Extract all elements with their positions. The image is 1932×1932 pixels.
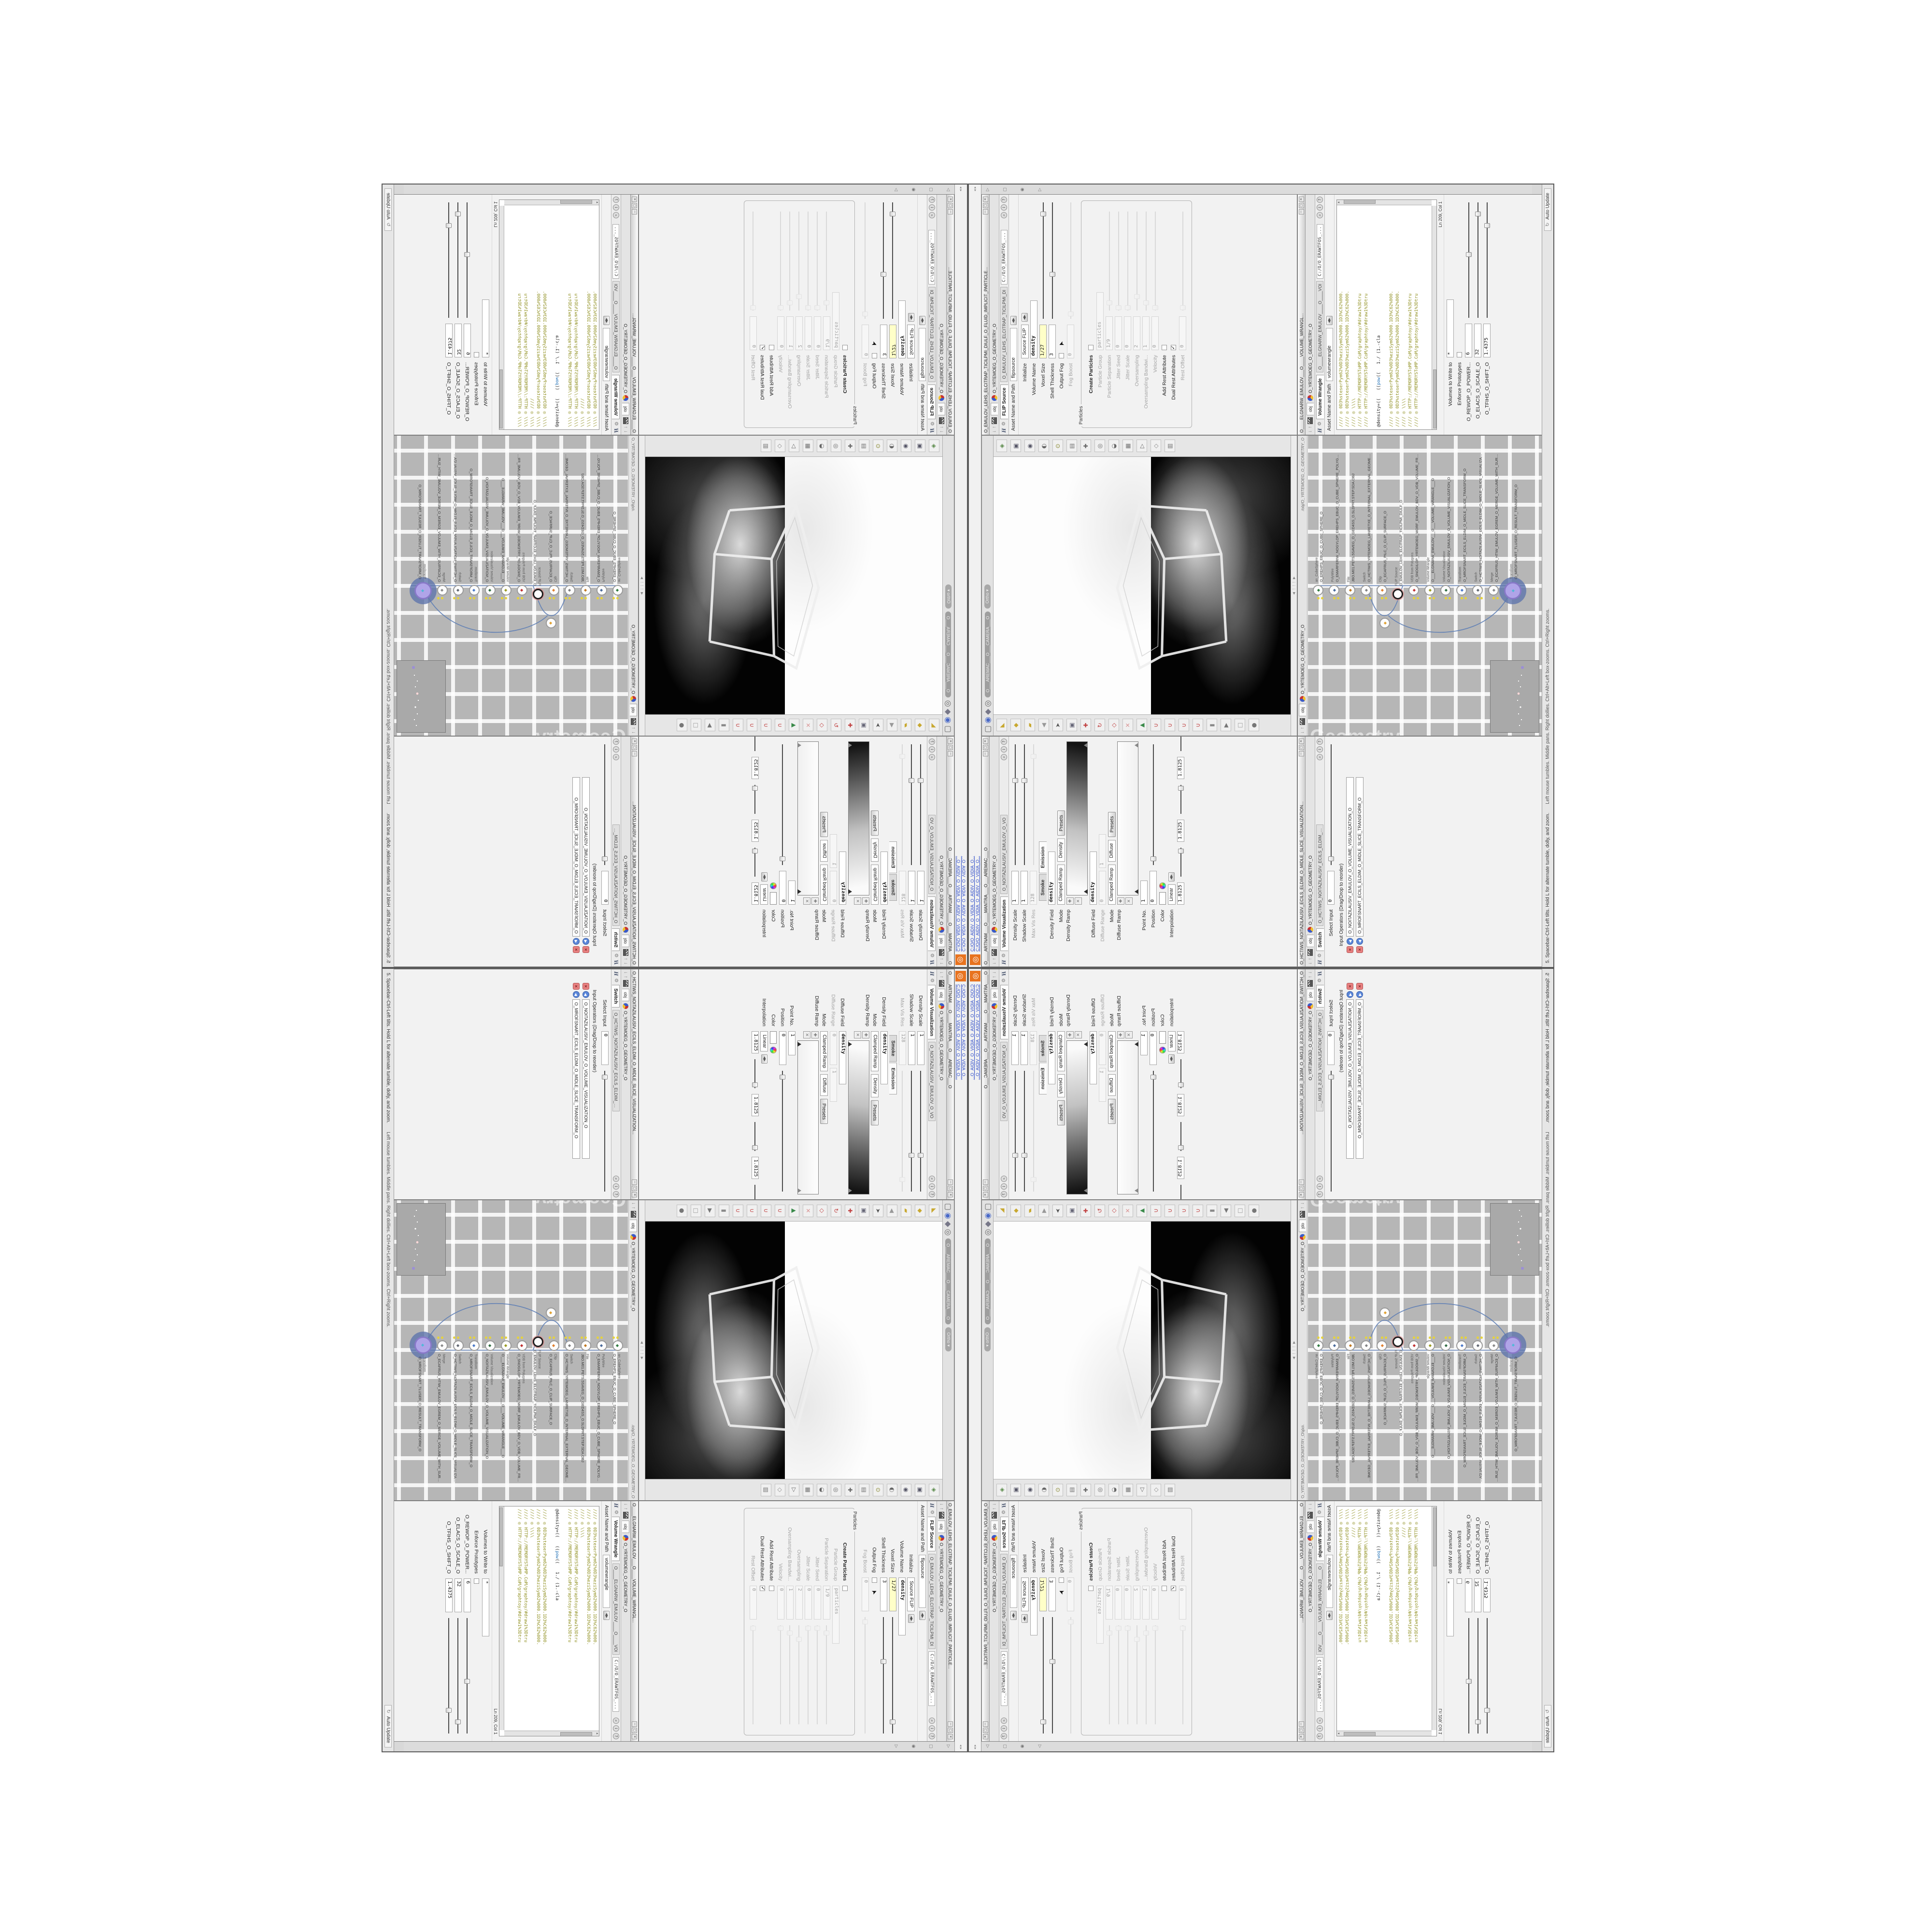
help-icon[interactable]: ?: [1001, 1191, 1007, 1197]
param-field[interactable]: 0: [1151, 316, 1159, 350]
info-icon[interactable]: i: [613, 1183, 619, 1190]
param-field[interactable]: density: [1048, 852, 1055, 905]
maximize-icon[interactable]: ▢: [632, 1186, 637, 1191]
divider-icon[interactable]: ▮: [719, 1205, 729, 1217]
param-field[interactable]: 1: [917, 1031, 924, 1065]
param-slider[interactable]: [862, 202, 869, 319]
gear-icon[interactable]: ⚙: [929, 978, 935, 982]
panel-icon[interactable]: ▢: [1003, 187, 1008, 192]
node-flag-icon[interactable]: [1445, 597, 1447, 599]
network-node[interactable]: ◆ClipO_ECAFRUS_PILC_O_CLIP_SURFACE_O: [1377, 511, 1387, 599]
help-icon[interactable]: ?: [929, 197, 935, 203]
param-field[interactable]: 3: [1049, 1577, 1056, 1611]
network-node[interactable]: ◆PolyWireO_EMARFERIW_NOGYLOP_EREHPS_EBUC…: [1329, 1336, 1339, 1483]
ramp-add-point-button[interactable]: ✚: [1066, 1031, 1074, 1038]
param-field[interactable]: 0: [1327, 1031, 1335, 1065]
help-icon[interactable]: ?: [929, 1733, 935, 1739]
spinner-chip-icon[interactable]: ◀▶: [1010, 1611, 1017, 1620]
dropdown-menu[interactable]: Density: [871, 838, 879, 861]
param-field[interactable]: 1: [1099, 1068, 1106, 1102]
node-flag-icon[interactable]: [1413, 1336, 1415, 1339]
param-slider[interactable]: [899, 1071, 906, 1192]
node-flag-icon[interactable]: [505, 1336, 508, 1339]
divider-icon[interactable]: ▮: [1207, 1205, 1217, 1217]
camera-box-icon[interactable]: ▣: [859, 1205, 869, 1217]
viewport-scene[interactable]: [645, 457, 942, 714]
ramp-delete-point-button[interactable]: ✕: [803, 1031, 810, 1038]
node-flag-icon[interactable]: [1429, 597, 1431, 599]
param-slider[interactable]: [1465, 1618, 1472, 1733]
node-body-icon[interactable]: ◆: [565, 585, 575, 596]
minimize-icon[interactable]: ─: [1299, 1179, 1304, 1185]
network-node[interactable]: ◆FileJBO.M01.PETS.5SAVEG_O_GED4SS_O.SLDP…: [1345, 473, 1355, 599]
param-field[interactable]: 6: [464, 1578, 471, 1612]
lock-view-icon[interactable]: ◉: [1024, 440, 1035, 453]
active-node-tab[interactable]: Switch: [1316, 985, 1324, 1007]
reorder-operator-icon[interactable]: ◀: [1356, 938, 1363, 945]
node-flag-icon[interactable]: [617, 1336, 619, 1339]
close-icon[interactable]: ✕: [1299, 1734, 1304, 1739]
param-field[interactable]: 32: [455, 324, 462, 357]
sphere-small-icon[interactable]: ●: [1249, 719, 1259, 732]
nav-back-icon[interactable]: ↓: [992, 1503, 997, 1506]
node-flag-icon[interactable]: [1349, 597, 1351, 599]
node-flag-icon[interactable]: [1477, 1336, 1479, 1339]
tray-arrow-icon[interactable]: ▷: [1037, 188, 1042, 191]
node-path-tab[interactable]: O_HCTIWS_NOITAZILAUSIV_ECILS_ELDIM_O_: [612, 824, 620, 926]
network-node[interactable]: ◆SwitchO_HCTIWS_NOITAZILAUSIV_ECILS_ELDI…: [1472, 453, 1483, 599]
half-shade-icon[interactable]: ◐: [1038, 1484, 1049, 1496]
param-field[interactable]: 128: [899, 871, 906, 905]
mesh-icon[interactable]: ▦: [803, 440, 813, 453]
param-field[interactable]: 0: [777, 316, 784, 350]
network-overview-minimap[interactable]: [397, 1203, 446, 1276]
close-icon[interactable]: ✕: [983, 197, 988, 202]
viewport-scene[interactable]: [994, 1222, 1291, 1479]
ramp-add-point-button[interactable]: ✚: [811, 897, 819, 905]
asset-name-field[interactable]: flipsource: [919, 328, 926, 381]
info-icon[interactable]: i: [929, 1725, 935, 1732]
node-body-icon[interactable]: ◆: [1313, 585, 1323, 596]
obj-tab[interactable]: obj: [1307, 989, 1314, 1001]
checkbox[interactable]: [474, 1578, 479, 1584]
gear-icon[interactable]: ⚙: [1001, 978, 1007, 982]
ramp-gradient-editor[interactable]: [797, 1040, 819, 1194]
nav-fwd-icon[interactable]: ↑: [992, 1507, 997, 1510]
paint-tool-icon[interactable]: ▰: [1024, 1205, 1035, 1217]
network-node[interactable]: ◆TransformO_MROFSNART_ECILS_ELDIM_O_MIDL…: [469, 469, 480, 599]
box-view-icon[interactable]: ◆: [983, 709, 992, 715]
window-titlebar[interactable]: O_HCTIWS_NOITAZILAUSIV_ECILS_ELDIM_O_MID…: [630, 969, 638, 1199]
search-icon[interactable]: ⌕: [613, 1718, 619, 1724]
help-icon[interactable]: ?: [613, 739, 619, 745]
node-body-icon[interactable]: ◆: [437, 585, 448, 596]
operator-name-field[interactable]: O_MROFSNART_ECILS_ELDIM_O_MIDLE_SLICE_TR…: [572, 777, 580, 937]
select-mode-icon[interactable]: ◈: [929, 1484, 939, 1496]
remove-operator-icon[interactable]: ✕: [573, 983, 580, 990]
select-diamond-icon[interactable]: ◆: [1010, 1205, 1021, 1217]
obj-tab[interactable]: obj: [991, 935, 998, 947]
node-body-icon[interactable]: ◆: [1345, 585, 1355, 596]
minimize-icon[interactable]: ─: [983, 209, 988, 214]
node-path-tab[interactable]: O_NOITAZILAUSIV_EMULOV_O_VO: [928, 1042, 936, 1121]
node-flag-icon[interactable]: [473, 1336, 476, 1339]
param-slider[interactable]: [787, 1625, 794, 1724]
close-icon[interactable]: ✕: [1299, 739, 1304, 744]
param-field[interactable]: 1: [917, 871, 924, 905]
network-node[interactable]: ◆SwitchO_HCTIWS_YRTEMOEG_LANRETXE_O_INTE…: [1361, 1336, 1371, 1483]
minimize-icon[interactable]: ─: [983, 1721, 988, 1727]
window-titlebar[interactable]: O____ELGNARW_EMULOV___O____VOLUME_WRANGL…: [630, 1501, 638, 1741]
node-body-icon[interactable]: ◆: [546, 618, 556, 628]
ramp-delete-point-button[interactable]: ✕: [854, 897, 861, 905]
param-field[interactable]: 1.4375: [445, 324, 453, 357]
search-icon[interactable]: ⌕: [1001, 1718, 1007, 1724]
network-node[interactable]: ◆TransformO_MROFSNART_ECILS_ELDIM_O_MIDL…: [1456, 1336, 1467, 1467]
checkbox[interactable]: [1162, 1586, 1167, 1591]
help-icon[interactable]: ?: [1317, 197, 1323, 203]
spinner-chip-icon[interactable]: ◀▶: [1326, 1611, 1333, 1620]
param-field[interactable]: 0: [805, 316, 812, 350]
ramp-delete-point-button[interactable]: ✕: [1075, 1031, 1082, 1038]
node-flag-icon[interactable]: [1461, 597, 1463, 599]
nav-back-icon[interactable]: ↓: [939, 971, 944, 974]
param-slider[interactable]: [1040, 202, 1047, 319]
ramp-gradient-editor[interactable]: [848, 1040, 869, 1194]
minimize-icon[interactable]: ─: [948, 1179, 953, 1185]
collapse-arrow-icon[interactable]: ▷: [985, 1745, 990, 1748]
param-field[interactable]: 0: [830, 1031, 837, 1065]
param-field[interactable]: particles: [832, 1586, 839, 1644]
reorder-operator-icon[interactable]: ◀: [573, 938, 580, 945]
operator-name-field[interactable]: O_MROFSNART_ECILS_ELDIM_O_MIDLE_SLICE_TR…: [1356, 999, 1364, 1159]
maximize-icon[interactable]: ▢: [983, 1186, 988, 1191]
param-slider[interactable]: [752, 1059, 759, 1088]
node-flag-icon[interactable]: [505, 597, 508, 599]
node-flag-icon[interactable]: [1445, 1336, 1447, 1339]
obj-tab[interactable]: obj: [1299, 1220, 1306, 1232]
network-node[interactable]: ◆Volume WrangleO___ELGNARW_EMULOV___O___…: [1424, 478, 1435, 599]
obj-tab[interactable]: obj: [1307, 403, 1314, 415]
active-node-tab[interactable]: FLIP Source: [928, 384, 936, 419]
gear-icon[interactable]: ⚙: [1001, 953, 1007, 958]
window-titlebar[interactable]: O____ELGNARW_EMULOV___O____VOLUME_WRANGL…: [1298, 1501, 1306, 1741]
info-icon[interactable]: i: [613, 204, 619, 211]
param-field[interactable]: 1: [1021, 871, 1028, 905]
maximize-icon[interactable]: ▢: [632, 745, 637, 750]
shade-box-icon[interactable]: ▣: [915, 440, 925, 453]
back-arrow-icon[interactable]: ◀: [887, 719, 897, 732]
layout-icon[interactable]: ▢: [944, 725, 953, 733]
node-flag-icon[interactable]: [601, 1336, 603, 1339]
param-slider[interactable]: [1115, 212, 1122, 311]
ortho-selector[interactable]: Ortho ▾: [945, 584, 952, 609]
scale-tool-icon[interactable]: ◇: [817, 719, 827, 732]
maximize-icon[interactable]: ▢: [983, 203, 988, 208]
node-flag-icon[interactable]: [441, 597, 444, 599]
window-titlebar[interactable]: O_EMULOV_LEHS_ELCITRAP_TICILPMI_DIULF_O_…: [946, 1501, 954, 1741]
help-icon[interactable]: ?: [929, 739, 935, 745]
geometry-path[interactable]: O_YRTEMOEG_O_GEOMETRY_O: [939, 324, 944, 393]
lock-view-icon[interactable]: ◉: [901, 1484, 911, 1496]
node-body-icon[interactable]: ◆: [1313, 1340, 1323, 1351]
param-slider[interactable]: [1040, 1617, 1047, 1733]
shade-box-icon[interactable]: ▣: [1010, 440, 1021, 453]
param-field[interactable]: 6: [1465, 1578, 1472, 1612]
param-slider[interactable]: [909, 1071, 915, 1192]
node-body-icon[interactable]: ◆: [1361, 1340, 1371, 1351]
network-canvas[interactable]: Geometry ◆an_CubeSphereO_EREHPS_EBUC_O_C…: [1308, 1200, 1542, 1500]
select-diamond-icon[interactable]: ◆: [915, 719, 925, 732]
maximize-icon[interactable]: ▢: [948, 745, 953, 750]
search-icon[interactable]: ⌕: [613, 1176, 619, 1182]
select-diamond-icon[interactable]: ◆: [915, 1205, 925, 1217]
info-icon[interactable]: i: [1001, 204, 1007, 211]
info-icon[interactable]: i: [1317, 1183, 1323, 1190]
network-node[interactable]: ◆TransformO_MROFSNART_TLUSER_O_RESULT_TR…: [414, 484, 432, 599]
nav-back-icon[interactable]: ↓: [623, 962, 628, 965]
node-body-icon[interactable]: ◆: [1408, 1340, 1419, 1351]
software-path-field[interactable]: C:/O/O_ERAWTFOS_...: [613, 1657, 620, 1712]
network-node[interactable]: ◆PolyWireO_EMARFERIW_NOGYLOP_EREHPS_EBUC…: [1329, 453, 1339, 599]
half-shade-icon[interactable]: ◐: [887, 440, 897, 453]
info-icon[interactable]: i: [1317, 746, 1323, 753]
param-field[interactable]: 1.8125: [1177, 1157, 1184, 1179]
node-flag-icon[interactable]: [521, 1336, 524, 1339]
geometry-path[interactable]: O_YRTEMOEG_O_GEOMETRY_O: [624, 324, 628, 393]
ramp-gradient-editor[interactable]: [1117, 741, 1138, 895]
presets-button[interactable]: Presets: [821, 1099, 828, 1124]
checkbox[interactable]: [769, 345, 774, 350]
divider-icon[interactable]: ▮: [1207, 719, 1217, 732]
presets-button[interactable]: Presets: [1057, 1100, 1065, 1125]
node-body-icon[interactable]: ◆: [485, 585, 496, 596]
param-slider[interactable]: [1134, 212, 1140, 311]
node-flag-icon[interactable]: [1365, 597, 1367, 599]
param-slider[interactable]: [455, 1618, 462, 1733]
param-slider[interactable]: [1143, 212, 1150, 311]
param-field[interactable]: 0: [814, 316, 821, 350]
play-icon[interactable]: ▷: [789, 1484, 799, 1496]
geometry-path[interactable]: O_YRTEMOEG_O_GEOMETRY_O: [631, 1242, 636, 1311]
active-node-tab[interactable]: FLIP Source: [1000, 1517, 1008, 1551]
param-slider[interactable]: [464, 202, 471, 318]
window-titlebar[interactable]: O____ARTNAM___O____MANTRA___O___AREMAC__…: [982, 969, 990, 1199]
maximize-icon[interactable]: ▢: [948, 1728, 953, 1733]
ramp-delete-point-button[interactable]: ✕: [854, 1031, 861, 1038]
network-node[interactable]: ◆MergeO_ECAFRUS_HTIW_EMULOV_EGREM_O_MERG…: [437, 453, 448, 599]
gear-icon[interactable]: ⚙: [1317, 978, 1322, 982]
node-path-tab[interactable]: O_EMULOV_LEHS_ELCITRAP_TICILPMI_DI: [1000, 1554, 1008, 1649]
info-icon[interactable]: i: [929, 1183, 935, 1190]
spinner-chip-icon[interactable]: ◀▶: [603, 316, 610, 325]
network-node[interactable]: ◆SwitchO_HCTIWS_YRTEMOEG_LANRETXE_O_INTE…: [1361, 453, 1371, 599]
gear-icon[interactable]: ⚙: [1317, 953, 1322, 958]
operator-name-field[interactable]: O_NOITAZILAUSIV_EMULOV_O_VOLUME_VISUALIZ…: [1346, 999, 1354, 1159]
select-mode-icon[interactable]: ◈: [996, 440, 1007, 453]
circle-tool-icon[interactable]: ◎: [831, 440, 841, 453]
close-icon[interactable]: ✕: [632, 1192, 637, 1197]
presets-button[interactable]: Presets: [1108, 1099, 1116, 1124]
maximize-icon[interactable]: ▢: [948, 203, 953, 208]
spinner-chip-icon[interactable]: ◀▶: [1326, 316, 1333, 325]
nav-back-icon[interactable]: ↓: [992, 430, 997, 433]
param-field[interactable]: 1/27: [1039, 1577, 1047, 1611]
close-icon[interactable]: ✕: [948, 739, 953, 744]
param-field[interactable]: 32: [1474, 324, 1481, 357]
nav-back-icon[interactable]: ↓: [939, 1503, 944, 1506]
snap-point-magnet-icon[interactable]: ∪: [761, 719, 771, 732]
mesh-icon[interactable]: ▦: [1122, 440, 1133, 453]
param-field[interactable]: 1.8125: [1177, 1094, 1184, 1116]
network-node[interactable]: ◆TransformO_MROFSNART_ECILS_ELDIM_O_MIDL…: [1456, 469, 1467, 599]
snap-grid-magnet-icon[interactable]: ∪: [1151, 719, 1161, 732]
param-slider[interactable]: [1106, 1625, 1113, 1724]
grid-icon[interactable]: ▤: [1066, 440, 1077, 453]
world-icon[interactable]: ◉: [944, 717, 953, 724]
nav-fwd-icon[interactable]: ↑: [939, 426, 944, 428]
paint-tool-icon[interactable]: ▰: [1024, 719, 1035, 732]
param-field[interactable]: density: [1090, 1031, 1097, 1084]
search-icon[interactable]: ⌕: [1001, 1176, 1007, 1182]
network-node[interactable]: ◆an_CubeSphereO_EREHPS_EBUC_O_CUBE_SPHER…: [612, 1336, 623, 1424]
ramp-add-point-button[interactable]: ✚: [862, 1031, 869, 1038]
param-slider[interactable]: [1115, 1625, 1122, 1724]
param-field[interactable]: density: [839, 852, 846, 905]
geometry-path[interactable]: O_YRTEMOEG_O_GEOMETRY_O: [939, 1543, 944, 1612]
play-small-icon[interactable]: ▶: [1221, 1205, 1231, 1217]
auto-update-control[interactable]: ↻Auto Update: [384, 1705, 392, 1747]
param-field[interactable]: particles: [1096, 1586, 1104, 1644]
target-icon[interactable]: ◎: [944, 1229, 953, 1236]
obj-tab[interactable]: obj: [622, 935, 629, 947]
param-slider[interactable]: [824, 212, 830, 311]
info-icon[interactable]: i: [613, 1725, 619, 1732]
param-field[interactable]: 1.8125: [752, 882, 759, 905]
vex-code-editor[interactable]: //// ◎ 0D3%steserPym62%0D3%eziSym62%000.…: [1336, 199, 1437, 430]
active-node-tab[interactable]: Volume Wrangle: [1316, 375, 1324, 419]
param-slider[interactable]: [918, 1071, 924, 1192]
param-field[interactable]: 0: [750, 1586, 757, 1619]
nav-fwd-icon[interactable]: ↑: [623, 958, 628, 960]
nav-fwd-icon[interactable]: ↑: [939, 958, 944, 960]
param-slider[interactable]: [1328, 1071, 1335, 1192]
obj-tab[interactable]: obj: [938, 935, 945, 947]
param-slider[interactable]: [805, 212, 812, 311]
nav-back-icon[interactable]: ↓: [631, 731, 636, 734]
checkbox[interactable]: [842, 1586, 848, 1591]
node-flag-icon[interactable]: [1333, 1336, 1335, 1339]
ramp-add-point-button[interactable]: ✚: [862, 897, 869, 905]
ramp-add-point-button[interactable]: ✚: [1066, 897, 1074, 905]
node-flag-icon[interactable]: [457, 1336, 460, 1339]
window-titlebar[interactable]: O____ARTNAM___O____MANTRA___O___AREMAC__…: [946, 969, 954, 1199]
network-node[interactable]: ◆an_CubeSphereO_EREHPS_EBUC_O_CUBE_SPHER…: [1313, 1336, 1323, 1424]
param-slider[interactable]: [1049, 202, 1056, 319]
node-body-icon[interactable]: ◆: [501, 1340, 511, 1351]
param-slider[interactable]: [1143, 1625, 1150, 1724]
param-field[interactable]: 0: [814, 1586, 821, 1619]
obj-tab[interactable]: obj: [630, 1220, 637, 1232]
snap-point-magnet-icon[interactable]: ∪: [1165, 1205, 1175, 1217]
node-body-icon[interactable]: ◆: [1504, 582, 1521, 599]
layout-icon[interactable]: ▢: [983, 725, 992, 733]
dropdown-menu[interactable]: Diffuse: [1108, 1074, 1116, 1096]
geometry-path[interactable]: O_YRTEMOEG_O_GEOMETRY_O: [939, 1011, 944, 1080]
param-field[interactable]: 1.8125: [1177, 820, 1184, 842]
param-field[interactable]: 0: [779, 871, 786, 905]
param-slider[interactable]: [1150, 1071, 1157, 1192]
play-small-icon[interactable]: ▶: [705, 719, 715, 732]
geometry-path[interactable]: O_YRTEMOEG_O_GEOMETRY_O: [1308, 1011, 1313, 1080]
file-path-link[interactable]: C:/O/O_AIDIV_O_VIDIA_O_AIDIV_O_VIDIA_O..…: [970, 856, 975, 952]
param-slider[interactable]: [780, 1071, 786, 1192]
color-swatch[interactable]: [770, 892, 777, 905]
camera-selector[interactable]: O___AREMAC___O___CAMERA___O: [985, 611, 991, 697]
dropdown-menu[interactable]: Density: [871, 1074, 879, 1097]
network-node[interactable]: ◆TransformO_MROFSNART_TLUSER_O_RESULT_TR…: [1504, 1336, 1521, 1451]
param-field[interactable]: 1: [830, 834, 837, 868]
param-slider[interactable]: [881, 1617, 887, 1733]
node-body-icon[interactable]: ◆: [1488, 585, 1499, 596]
node-body-icon[interactable]: ◆: [1377, 585, 1387, 596]
cursor-tool-icon[interactable]: ➤: [1052, 1205, 1063, 1217]
dropdown-menu[interactable]: Source FLIP: [908, 325, 915, 358]
ramp-add-point-button[interactable]: ✚: [1117, 897, 1124, 905]
minimize-icon[interactable]: ─: [632, 1721, 637, 1727]
node-flag-icon[interactable]: [1317, 597, 1320, 599]
param-slider[interactable]: [1465, 202, 1472, 318]
circle-tool-icon[interactable]: ◎: [1094, 440, 1105, 453]
node-body-icon[interactable]: ◆: [581, 585, 591, 596]
param-slider[interactable]: [1178, 736, 1184, 751]
move-tool-icon[interactable]: ✚: [1080, 719, 1091, 732]
param-field[interactable]: 1/27: [889, 1577, 896, 1611]
info-icon[interactable]: i: [1001, 746, 1007, 753]
minimize-icon[interactable]: ─: [1299, 1721, 1304, 1727]
dropdown-menu[interactable]: Density: [1057, 1074, 1065, 1097]
info-icon[interactable]: i: [1001, 1725, 1007, 1732]
node-body-icon[interactable]: ◆: [1424, 585, 1435, 596]
param-field[interactable]: density: [1048, 1031, 1055, 1084]
param-field[interactable]: 0: [1115, 316, 1122, 350]
node-flag-icon[interactable]: [569, 1336, 571, 1339]
color-picker-icon[interactable]: [770, 1047, 777, 1053]
asset-name-field[interactable]: volumewrangle: [1326, 1555, 1333, 1608]
search-icon[interactable]: ⌕: [1001, 754, 1007, 760]
code-horizontal-scrollbar[interactable]: [1432, 206, 1436, 429]
minimize-icon[interactable]: ─: [632, 751, 637, 756]
grid-icon[interactable]: ▤: [1066, 1484, 1077, 1496]
node-flag-icon[interactable]: [553, 1336, 555, 1339]
param-slider[interactable]: [752, 785, 759, 814]
splitter-arrows-icon[interactable]: ◂ ▸: [959, 186, 963, 191]
dropdown-menu[interactable]: Clamped Ramp: [821, 865, 828, 905]
info-icon[interactable]: i: [1001, 1183, 1007, 1190]
crosshair-icon[interactable]: ✚: [1080, 1484, 1091, 1496]
rotate-tool-icon[interactable]: ↻: [1094, 719, 1105, 732]
node-flag-icon[interactable]: [1381, 597, 1383, 599]
remove-operator-icon[interactable]: ✕: [573, 946, 580, 953]
nav-fwd-icon[interactable]: ↑: [1307, 976, 1313, 978]
param-field[interactable]: 1/9: [1106, 316, 1113, 350]
search-icon[interactable]: ⌕: [613, 754, 619, 760]
node-body-icon[interactable]: ◆: [1488, 1340, 1499, 1351]
search-icon[interactable]: ⌕: [613, 212, 619, 218]
color-picker-icon[interactable]: [770, 882, 777, 889]
geometry-path[interactable]: O_YRTEMOEG_O_GEOMETRY_O: [992, 1011, 997, 1080]
software-path-field[interactable]: C:/O/O_ERAWTFOS_...: [1317, 224, 1323, 279]
